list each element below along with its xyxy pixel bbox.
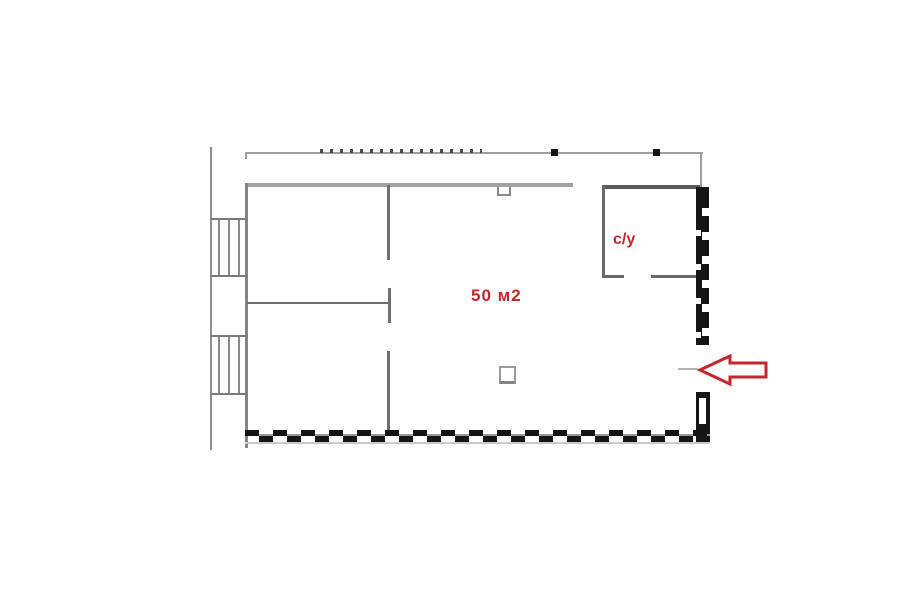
top-wall: [245, 183, 573, 187]
window-pane-line: [228, 337, 230, 393]
outer-boundary-line-right: [700, 152, 702, 187]
boundary-tick: [245, 152, 247, 159]
window-pane-line: [218, 337, 220, 393]
interior-wall-end-cap: [388, 288, 391, 323]
door-jamb-slot: [699, 398, 706, 424]
entrance-arrow-icon: [0, 0, 900, 604]
column-symbol: [499, 366, 516, 384]
boundary-marker: [653, 149, 660, 156]
window-pane-line: [218, 220, 220, 275]
bottom-wall-shadow-line: [245, 442, 710, 444]
bathroom-left-wall: [602, 185, 605, 278]
bathroom-bottom-wall: [651, 275, 700, 278]
top-wall-notch: [497, 187, 511, 196]
interior-wall-horizontal: [247, 302, 390, 304]
bathroom-label: с/у: [613, 231, 635, 249]
interior-wall-vertical-upper: [387, 185, 390, 260]
window-pane-line: [228, 220, 230, 275]
floor-plan: 50 м2 с/у: [0, 0, 900, 604]
window-pane-line: [238, 337, 240, 393]
window-symbol-upper: [211, 218, 247, 277]
boundary-marker: [551, 149, 558, 156]
boundary-tick-marks: [320, 149, 482, 153]
bathroom-bottom-wall: [602, 275, 624, 278]
interior-wall-vertical-lower: [387, 351, 390, 432]
outer-boundary-line-left: [210, 147, 212, 450]
area-label: 50 м2: [471, 286, 522, 306]
right-wall-dash-gaps: [702, 192, 710, 342]
entrance-door-leaf: [678, 368, 698, 370]
bathroom-top-wall: [602, 185, 700, 189]
right-wall-dash-gaps: [696, 230, 701, 340]
window-symbol-lower: [211, 335, 247, 395]
window-pane-line: [238, 220, 240, 275]
